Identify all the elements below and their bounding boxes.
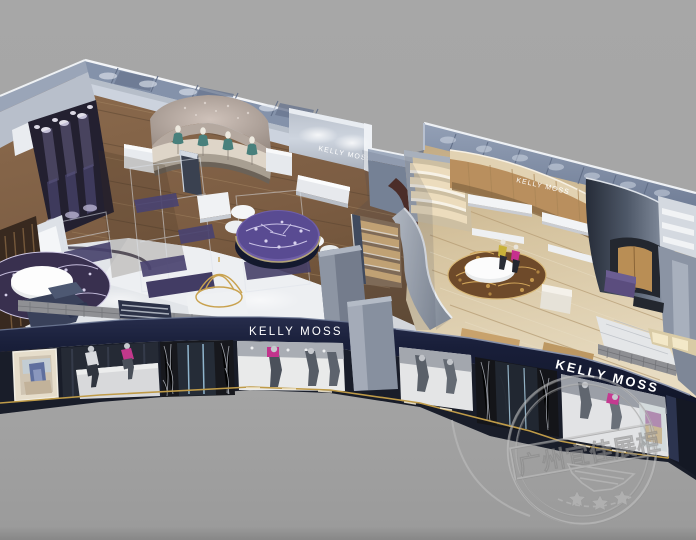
svg-text:KELLY MOSS: KELLY MOSS bbox=[249, 326, 343, 338]
